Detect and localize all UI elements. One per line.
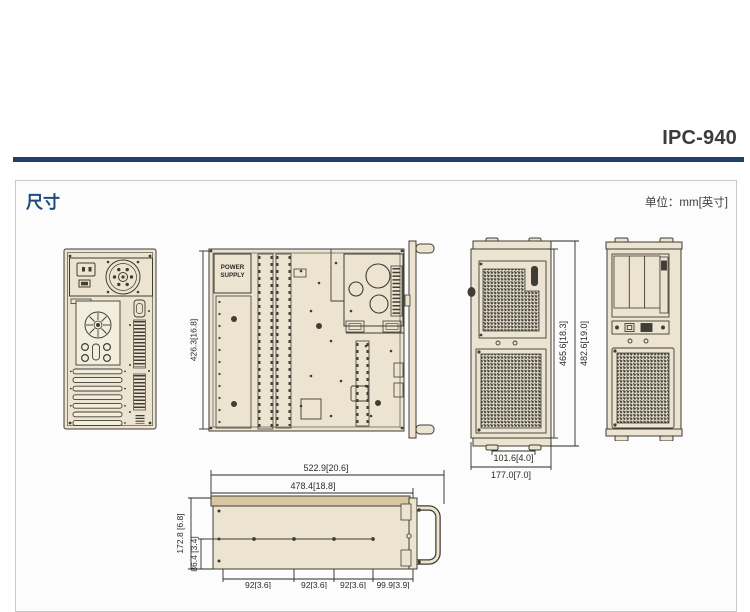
front-body-height-label: 465.6[18.3]	[558, 321, 568, 366]
top-front-rail	[405, 241, 434, 438]
front-overall-height-label: 482.6[19.0]	[579, 321, 589, 366]
top-depth-dimension	[199, 251, 209, 429]
unit-label: 单位：mm[英寸]	[645, 194, 728, 210]
front-foot-spacing-label: 101.6[4.0]	[493, 453, 533, 463]
rear-expansion-slots	[73, 369, 122, 425]
top-view-drawing: 426.3[16.8] POWER SUPPLY	[189, 238, 441, 448]
accent-divider	[13, 157, 744, 162]
power-supply-label-1: POWER	[221, 264, 245, 271]
front-view-drawing: 465.6[18.3] 482.6[19.0] 101.6[4.0] 177.0…	[463, 237, 593, 487]
top-depth-dim-label: 426.3[16.8]	[189, 319, 199, 362]
front-width-label: 177.0[7.0]	[491, 470, 531, 480]
rear-rotated-mesh	[617, 353, 669, 423]
side-inner-width-label: 478.4[18.8]	[290, 481, 335, 491]
side-half-height-label: 86.4 [3.4]	[189, 536, 199, 571]
rear-view-drawing	[63, 247, 157, 431]
power-supply-label-2: SUPPLY	[220, 272, 245, 279]
dimensions-panel: 尺寸 单位：mm[英寸]	[15, 180, 737, 612]
side-overall-width-label: 522.9[20.6]	[303, 463, 348, 473]
page-title: IPC-940	[662, 127, 737, 150]
side-body	[211, 496, 417, 569]
side-height-label: 172.8 [6.8]	[175, 513, 185, 553]
rear-rotated-view-drawing	[599, 237, 689, 441]
page: { "header": { "product_code": "IPC-940" …	[0, 0, 750, 588]
rear-io-plate	[76, 301, 120, 365]
side-profile-drawing: 522.9[20.6] 478.4[18.8] 1	[173, 451, 449, 589]
section-title: 尺寸	[26, 188, 60, 213]
